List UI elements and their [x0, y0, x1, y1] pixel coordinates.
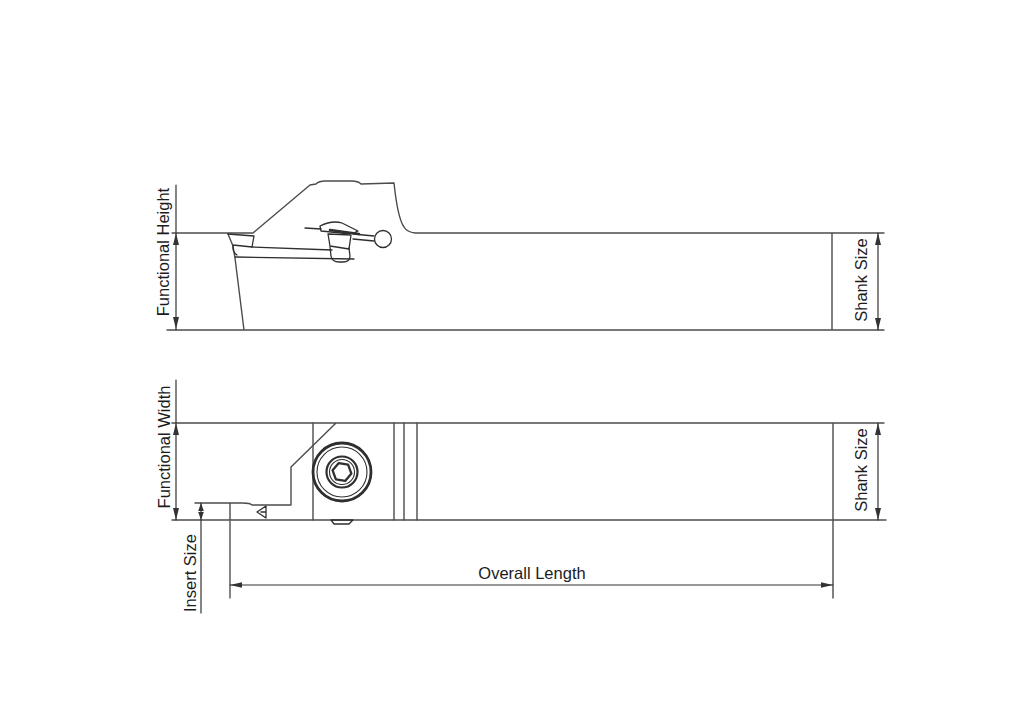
clamp-pivot-block [328, 234, 351, 249]
clamp-tab [331, 520, 353, 524]
arrowhead [173, 423, 179, 435]
plan-view-detail-group [257, 443, 371, 524]
insert-side-profile [235, 247, 354, 259]
arrowhead [875, 318, 881, 330]
functional-width-label: Functional Width [155, 386, 173, 509]
tool-holder-technical-drawing: Functional Height Shank Size Functional … [0, 0, 1024, 724]
dimension-lines-group [176, 185, 878, 613]
clamp-recess-line [305, 228, 321, 229]
head-joint-lines [313, 423, 417, 520]
side-view-group [167, 181, 884, 330]
arrowhead [875, 508, 881, 520]
screw-socket-outer [327, 457, 358, 488]
arrowhead [173, 508, 179, 520]
arrowhead [230, 582, 242, 588]
side-view-body-outline [167, 181, 884, 330]
dimension-labels-group: Functional Height Shank Size Functional … [154, 187, 870, 612]
arrowhead [875, 423, 881, 435]
arrowhead [173, 317, 179, 329]
arrowhead [173, 233, 179, 245]
arrowhead [198, 512, 204, 520]
functional-height-label: Functional Height [154, 187, 172, 316]
screw-head-outer-ring [313, 443, 371, 501]
screw-head-inner-ring [317, 447, 367, 497]
drawing-canvas: Functional Height Shank Size Functional … [0, 0, 1024, 724]
shank-size-top-label: Shank Size [852, 238, 870, 321]
arrowhead [198, 503, 204, 511]
arrowhead [875, 233, 881, 245]
side-view-detail-group [228, 222, 392, 262]
hex-socket [333, 463, 352, 481]
shank-size-bottom-label: Shank Size [852, 428, 870, 511]
clamp-pin-ball [375, 231, 392, 248]
dimension-arrowheads-group [173, 233, 881, 588]
insert-size-label: Insert Size [181, 534, 199, 612]
clamp-pin-rod [353, 234, 374, 241]
overall-length-label: Overall Length [478, 564, 585, 582]
insert-tip-marker [257, 506, 266, 518]
arrowhead [821, 582, 833, 588]
